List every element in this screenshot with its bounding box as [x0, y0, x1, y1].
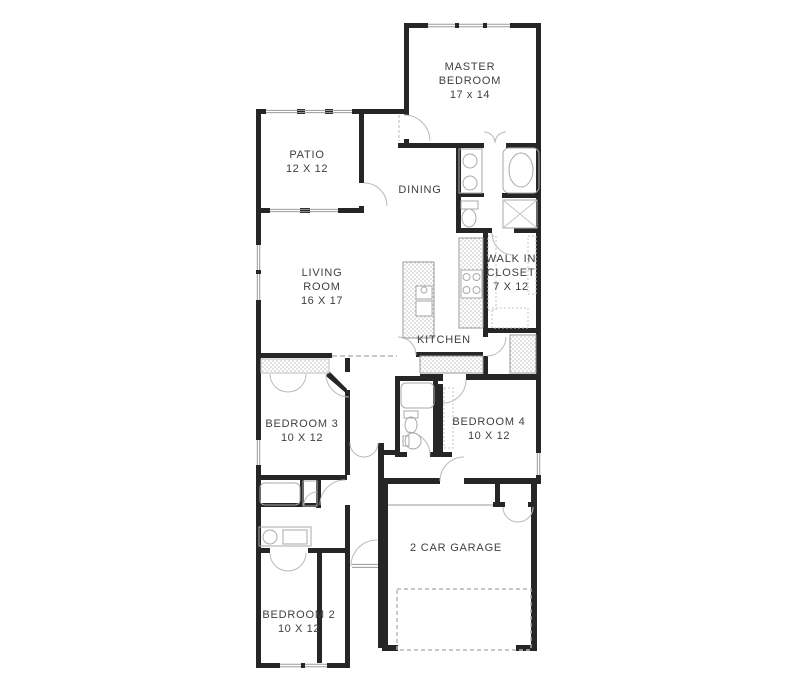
- master-vanity: [459, 149, 482, 193]
- room-name: BEDROOM 2: [254, 608, 344, 622]
- room-dims: 7 X 12: [485, 280, 537, 294]
- bathtub-icon: [503, 148, 539, 193]
- room-name: MASTER BEDROOM: [425, 60, 515, 88]
- toilet-icon: [404, 411, 418, 433]
- bathtub-icon: [401, 383, 434, 408]
- windows-layer: [256, 23, 540, 668]
- room-label-dining: DINING: [380, 183, 460, 197]
- floor-plan-svg: [0, 0, 800, 700]
- room-label-living-room: LIVING ROOM 16 X 17: [287, 266, 357, 308]
- nook-counter: [420, 356, 483, 373]
- toilet-icon: [461, 201, 478, 227]
- room-name: KITCHEN: [404, 333, 484, 347]
- room-label-patio: PATIO 12 X 12: [262, 148, 352, 176]
- room-name: PATIO: [262, 148, 352, 162]
- room-name: BEDROOM 3: [257, 417, 347, 431]
- shower-icon: [503, 200, 537, 228]
- room-label-bedroom-3: BEDROOM 3 10 X 12: [257, 417, 347, 445]
- range-icon: [461, 270, 482, 298]
- garage-apron-outline: [397, 589, 531, 650]
- room-label-kitchen: KITCHEN: [404, 333, 484, 347]
- room-dims: 10 X 12: [254, 622, 344, 636]
- room-label-garage: 2 CAR GARAGE: [396, 541, 516, 555]
- bathtub-icon: [260, 483, 300, 505]
- room-name: WALK IN CLOSET: [485, 252, 537, 280]
- room-label-bedroom-4: BEDROOM 4 10 X 12: [444, 415, 534, 443]
- bath-vanity: [259, 527, 311, 546]
- closet-shelving: [261, 359, 329, 373]
- room-dims: 17 x 14: [425, 88, 515, 102]
- room-label-bedroom-2: BEDROOM 2 10 X 12: [254, 608, 344, 636]
- sink-icon: [283, 530, 307, 544]
- room-name: LIVING ROOM: [287, 266, 357, 294]
- sink-icon: [263, 530, 277, 544]
- room-label-walk-in-closet: WALK IN CLOSET 7 X 12: [485, 252, 537, 294]
- room-dims: 10 X 12: [444, 429, 534, 443]
- kitchen-island: [403, 262, 434, 338]
- sink-icon: [463, 176, 477, 190]
- room-name: 2 CAR GARAGE: [396, 541, 516, 555]
- room-name: DINING: [380, 183, 460, 197]
- walls-layer: [256, 23, 541, 668]
- room-name: BEDROOM 4: [444, 415, 534, 429]
- room-dims: 12 X 12: [262, 162, 352, 176]
- room-dims: 16 X 17: [287, 294, 357, 308]
- sink-icon: [463, 154, 477, 168]
- room-label-master-bedroom: MASTER BEDROOM 17 x 14: [425, 60, 515, 102]
- room-dims: 10 X 12: [257, 431, 347, 445]
- floor-plan-canvas: MASTER BEDROOM 17 x 14 PATIO 12 X 12 DIN…: [0, 0, 800, 700]
- laundry-appliances: [510, 335, 536, 373]
- sink-icon: [403, 433, 421, 449]
